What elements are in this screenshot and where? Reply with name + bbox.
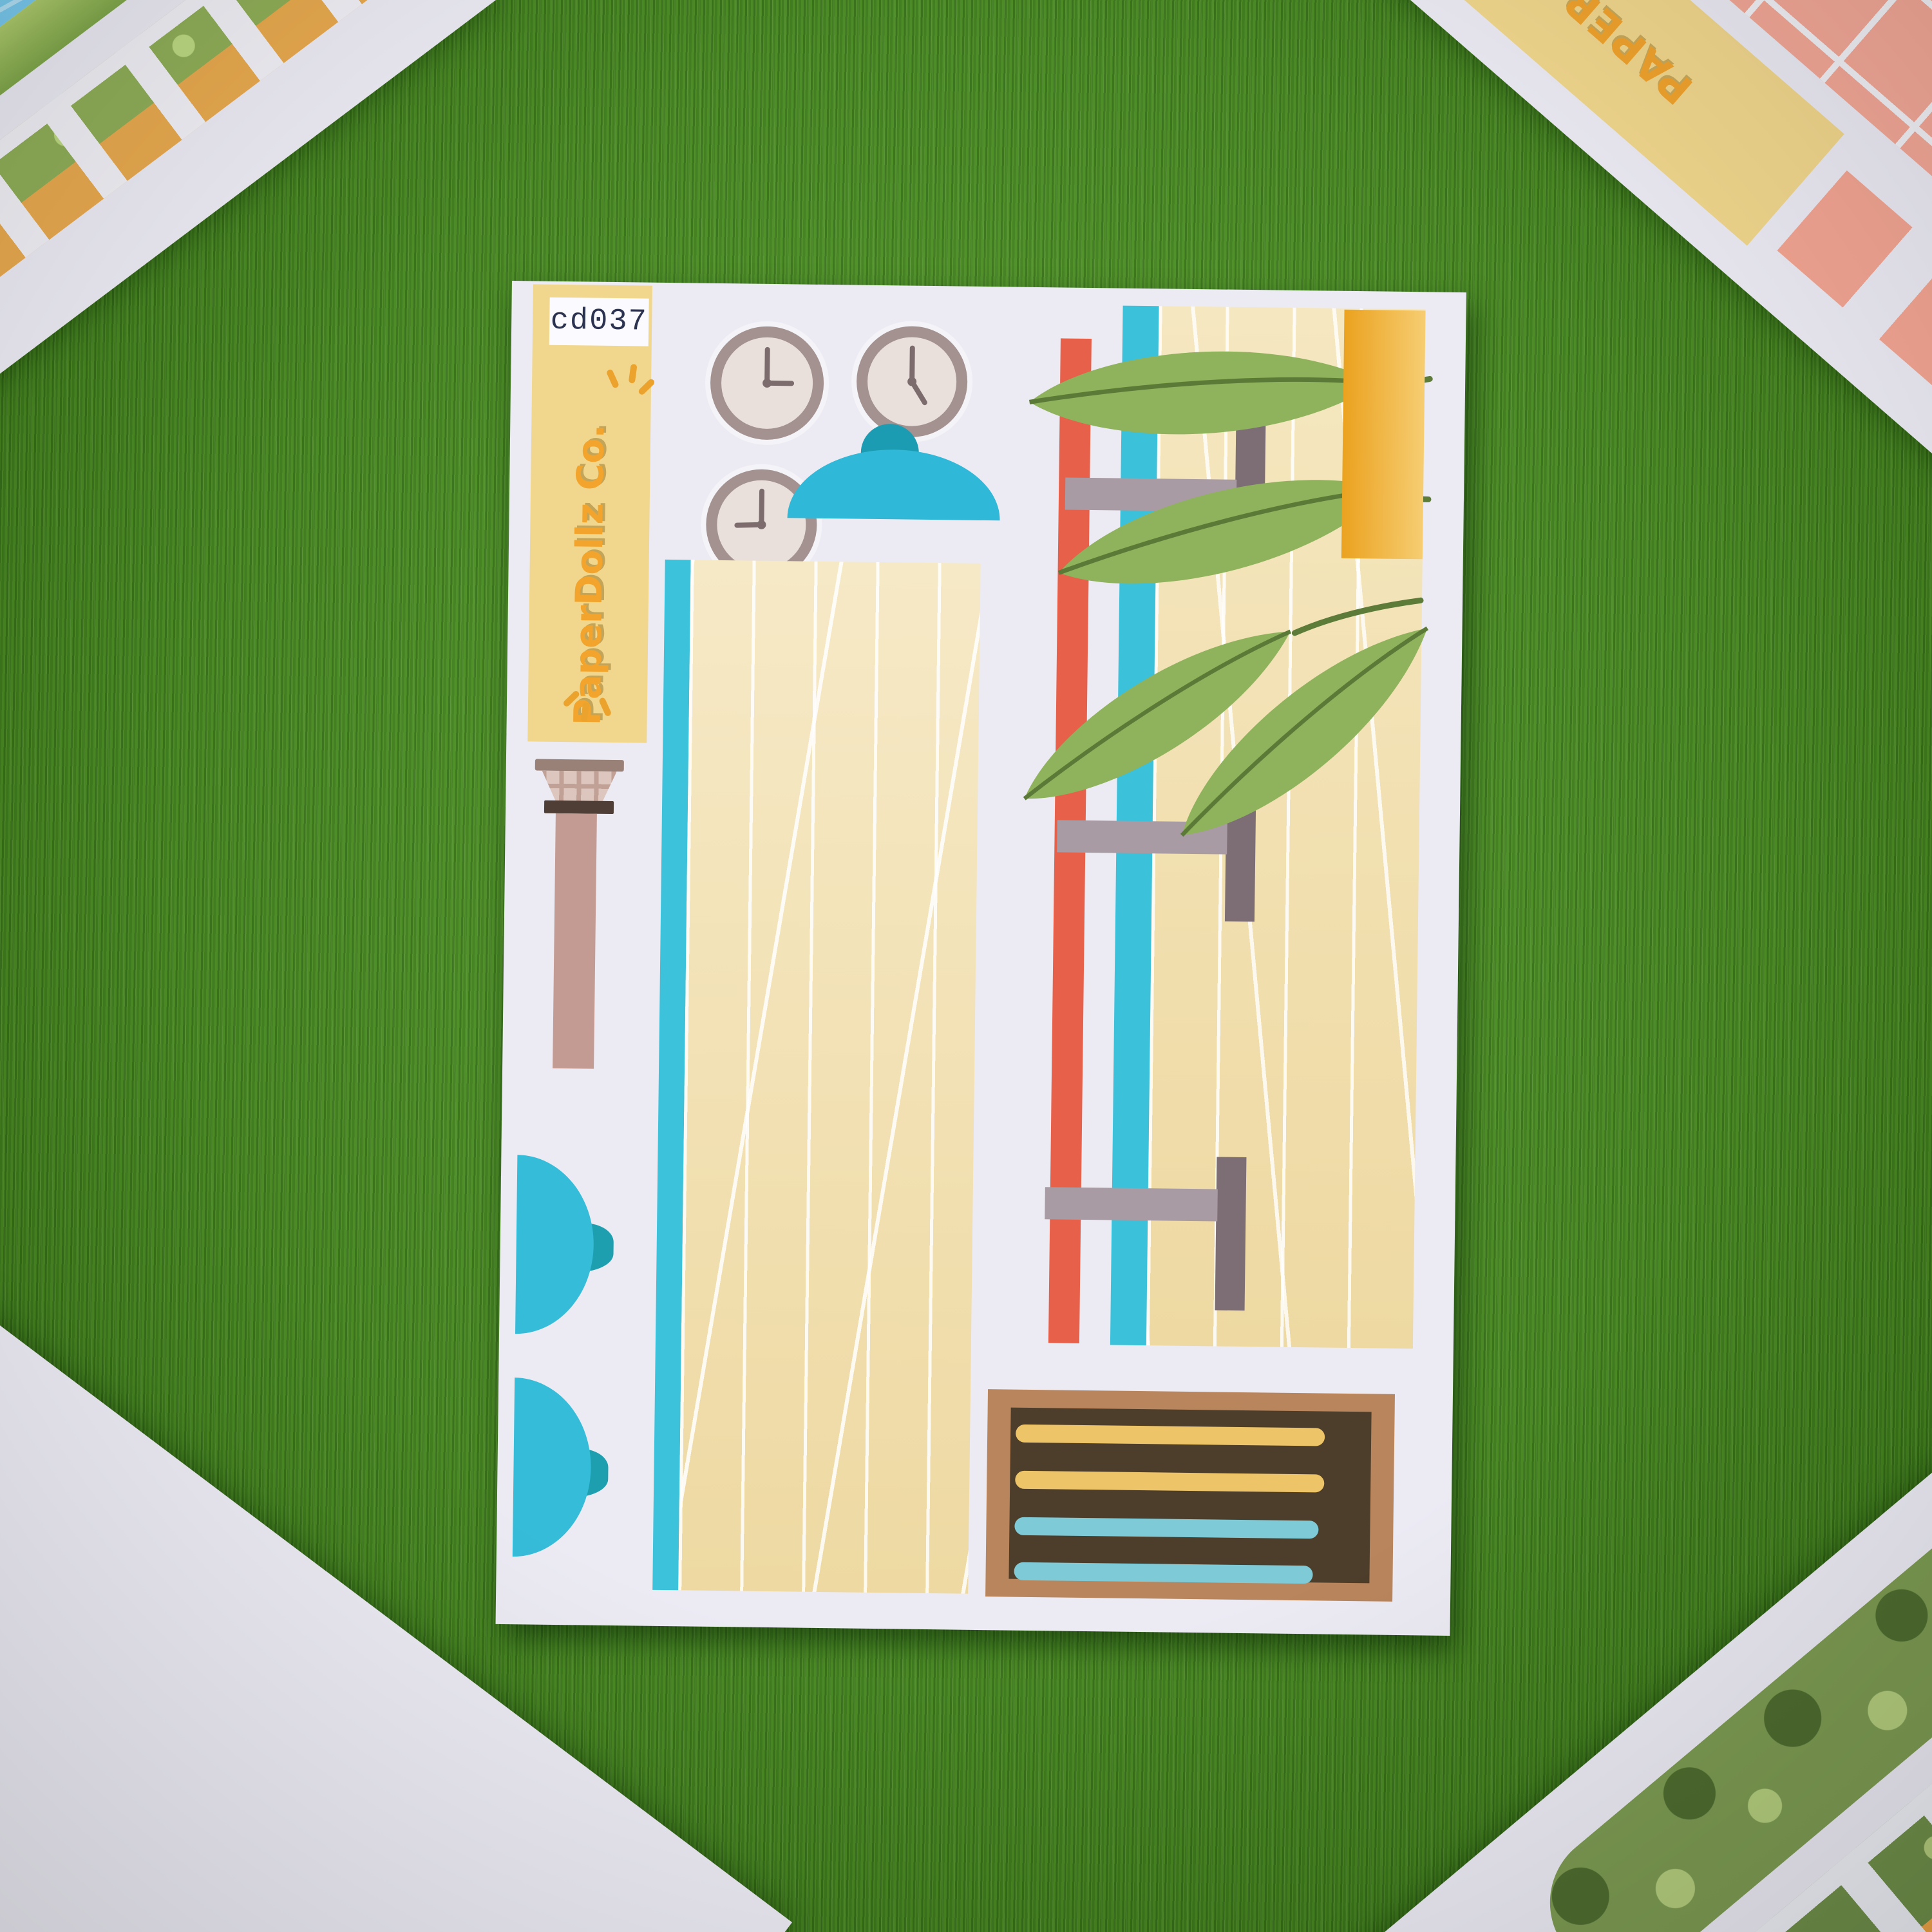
deck-tile-grid: [678, 560, 981, 1593]
clock-icon: [710, 326, 824, 440]
side-dome-sticker: [515, 1155, 594, 1334]
orange-pillar: [1341, 310, 1426, 560]
brand-banner: cd037 PaperDollz Co.: [527, 284, 652, 743]
doormat-sticker: [985, 1389, 1395, 1602]
watchtower-lattice: [542, 771, 617, 802]
clock-minute-hand: [759, 489, 764, 525]
doormat-stripe: [1016, 1425, 1325, 1446]
sparkle-icon: [605, 357, 659, 407]
pool-scene-sticker: [1005, 305, 1438, 1374]
clock-minute-hand: [764, 347, 770, 383]
watchtower-column-sticker: [553, 813, 597, 1069]
clock-hour-hand: [734, 522, 761, 528]
watchtower-band: [544, 800, 614, 814]
doormat-stripe: [1014, 1517, 1318, 1539]
photo-canvas: PAPER ✈ ✈ Pa: [0, 0, 1932, 1932]
clock-hour-hand: [910, 381, 929, 406]
awning-dome-sticker: [788, 448, 1001, 520]
pool-deck-panel-sticker: [652, 560, 981, 1594]
clock-hour-hand: [767, 381, 794, 386]
side-dome-sticker: [513, 1378, 592, 1557]
center-sticker-sheet: cd037 PaperDollz Co.: [496, 281, 1466, 1636]
clock-minute-hand: [909, 346, 915, 382]
doormat-stripe: [1014, 1562, 1312, 1584]
product-code-label: cd037: [549, 298, 649, 346]
clock-icon: [856, 326, 968, 438]
doormat-stripe: [1015, 1471, 1324, 1493]
watchtower-cap: [535, 759, 624, 772]
